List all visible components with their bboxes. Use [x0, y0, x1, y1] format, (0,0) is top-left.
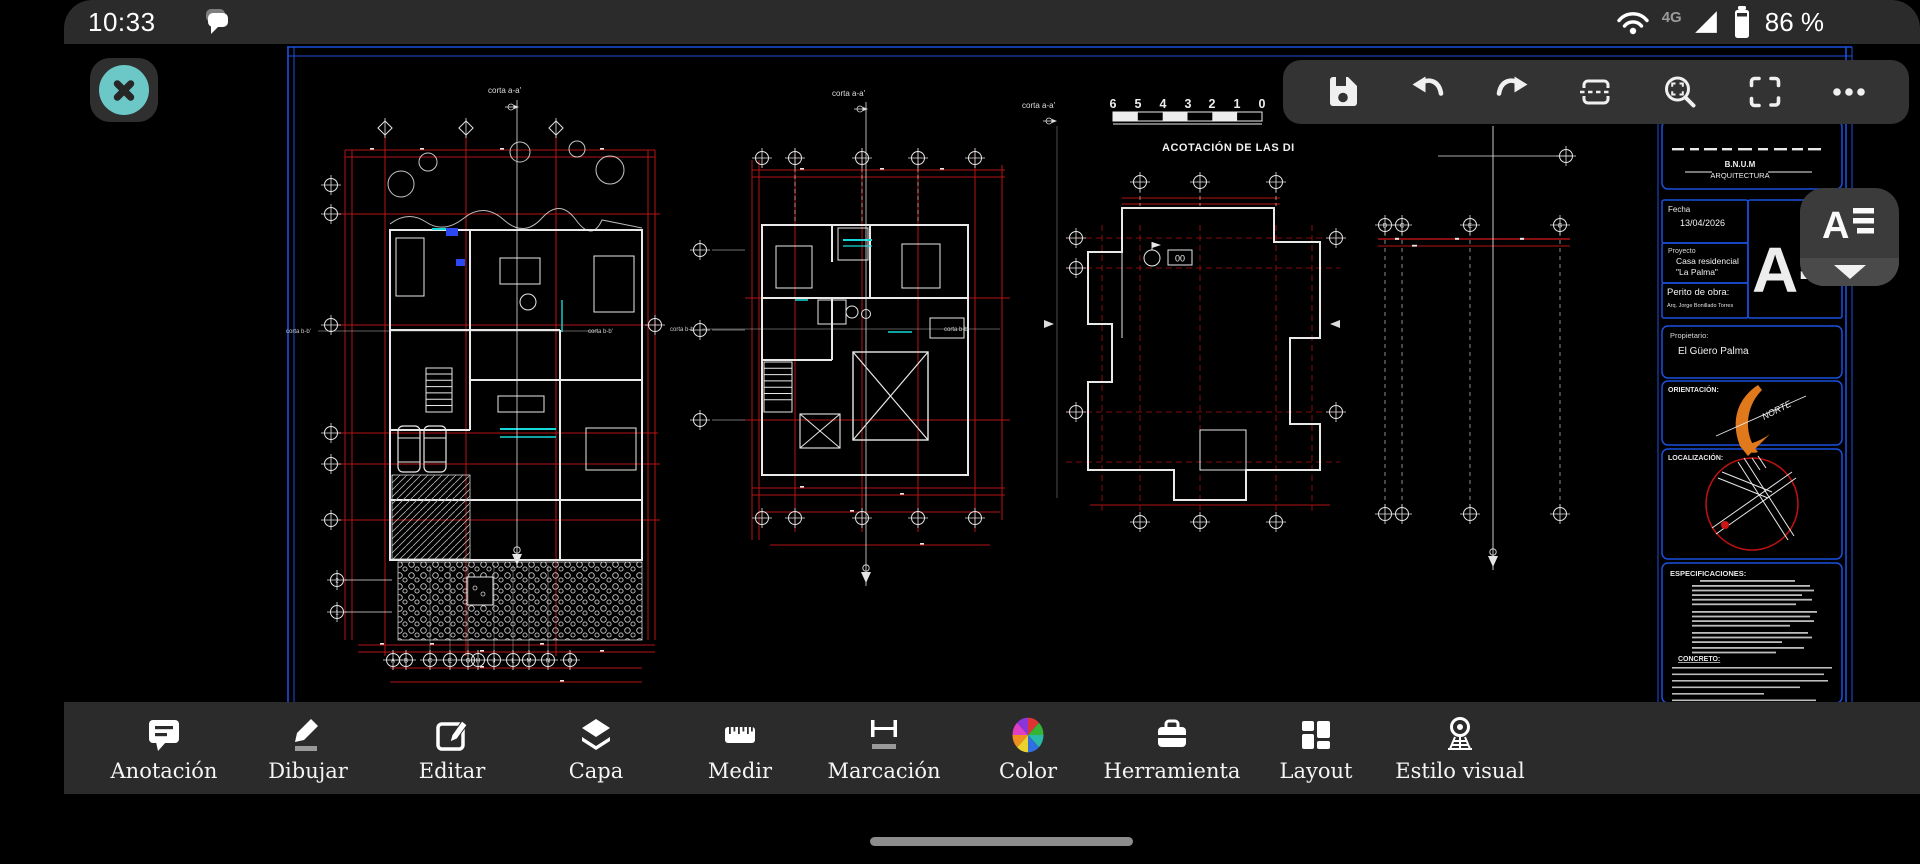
section-label: corta a-a': [488, 86, 522, 95]
concreto-text-lines: [1672, 667, 1832, 701]
toolbox-icon: [1152, 713, 1192, 757]
toolbar-item-editar[interactable]: Editar: [380, 702, 524, 794]
zoom-window-icon: [1660, 72, 1700, 112]
toolbar-item-capa[interactable]: Capa: [524, 702, 668, 794]
grid-letter: A: [391, 659, 395, 665]
layers-icon: [576, 713, 616, 757]
norte-label: NORTE: [1760, 398, 1793, 422]
grid-letter: G: [1558, 224, 1563, 230]
status-bar: 10:33 4G 86 %: [64, 0, 1920, 44]
roof-tag: 00: [1175, 254, 1185, 264]
sheet-selector-expand[interactable]: [1800, 258, 1899, 286]
clock: 10:33: [88, 7, 156, 38]
grid-letter: J: [493, 659, 496, 665]
section-icon: [1576, 72, 1616, 112]
toolbar-item-anotacion[interactable]: Anotación: [92, 702, 236, 794]
fullscreen-icon: [1745, 72, 1785, 112]
color-wheel-icon: [1008, 713, 1048, 757]
visual-style-icon: [1440, 713, 1480, 757]
section-label: corta a-a': [832, 89, 866, 98]
scale-tick: 3: [1185, 97, 1192, 111]
grid-letter: G: [466, 659, 471, 665]
undo-icon: [1408, 72, 1448, 112]
grid-strip: D C E G: [1375, 126, 1576, 570]
scale-bar: 6 5 4 3 2 1 0 ACOTACIÓN DE LAS DI: [1110, 97, 1295, 154]
toolbar-item-marcacion[interactable]: Marcación: [812, 702, 956, 794]
save-icon: [1323, 72, 1363, 112]
toolbar-item-estilo-visual[interactable]: Estilo visual: [1388, 702, 1532, 794]
toolbar-item-color[interactable]: Color: [956, 702, 1100, 794]
toolbar-label: Estilo visual: [1395, 759, 1524, 783]
redo-button[interactable]: [1488, 68, 1536, 116]
close-icon: [99, 65, 149, 115]
phone-screen: 10:33 4G 86 %: [0, 0, 1920, 864]
cad-viewer-app: 10:33 4G 86 %: [64, 0, 1920, 864]
grid-letter: E: [448, 659, 452, 665]
toolbar-label: Layout: [1280, 759, 1353, 783]
toolbar-label: Capa: [569, 759, 624, 783]
propietario-label: Propietario:: [1670, 331, 1708, 340]
section-label: corta b-b': [286, 329, 311, 335]
grid-letter: C: [428, 659, 433, 665]
top-toolbar: [1283, 60, 1909, 124]
especificaciones-label: ESPECIFICACIONES:: [1670, 569, 1746, 578]
propietario-value: El Güero Palma: [1678, 346, 1749, 357]
perito-value: Arq. Jorge Bonillado Torres: [1667, 303, 1733, 309]
chevron-down-icon: [1834, 265, 1866, 279]
firm-name: B.N.U.M: [1725, 160, 1756, 169]
scale-tick: 4: [1160, 97, 1167, 111]
scale-caption: ACOTACIÓN DE LAS DI: [1162, 141, 1295, 154]
grid-letter: O: [568, 659, 573, 665]
grid-number: 1: [335, 611, 339, 617]
grid-letter: C: [1400, 224, 1405, 230]
cad-canvas[interactable]: 6 5 4 3 2 1 0 ACOTACIÓN DE LAS DI: [64, 44, 1920, 702]
scale-tick: 0: [1259, 97, 1266, 111]
signal-icon: [1693, 9, 1719, 35]
toolbar-label: Color: [999, 759, 1057, 783]
spec-text-lines: [1692, 580, 1817, 653]
undo-button[interactable]: [1404, 68, 1452, 116]
ruler-icon: [720, 713, 760, 757]
scale-tick: 1: [1234, 97, 1241, 111]
proyecto-label: Proyecto: [1668, 248, 1696, 255]
bottom-toolbar: Anotación Dibujar Editar: [64, 702, 1920, 794]
grid-letter: L: [511, 659, 515, 665]
section-label: corta b-b': [944, 327, 969, 333]
toolbar-item-layout[interactable]: Layout: [1244, 702, 1388, 794]
wifi-icon: [1615, 9, 1651, 35]
close-button[interactable]: [90, 58, 158, 122]
toolbar-label: Anotación: [111, 759, 218, 783]
fecha-value: 13/04/2026: [1680, 218, 1725, 228]
fullscreen-button[interactable]: [1741, 68, 1789, 116]
chat-notification-icon: [202, 8, 232, 36]
grid-letter: H: [476, 659, 480, 665]
toolbar-item-herramienta[interactable]: Herramienta: [1100, 702, 1244, 794]
toolbar-label: Medir: [708, 759, 772, 783]
firm-subtitle: ARQUITECTURA: [1710, 171, 1769, 180]
proyecto-value-1: Casa residencial: [1676, 256, 1739, 266]
section-label: corta b-b': [670, 327, 695, 333]
orientacion-label: ORIENTACIÓN:: [1668, 385, 1719, 394]
save-button[interactable]: [1319, 68, 1367, 116]
concreto-label: CONCRETO:: [1678, 656, 1720, 663]
plan-3: 00 corta a-a': [1022, 101, 1346, 532]
zoom-window-button[interactable]: [1656, 68, 1704, 116]
scale-tick: 6: [1110, 97, 1117, 111]
toolbar-label: Editar: [419, 759, 486, 783]
toolbar-label: Dibujar: [268, 759, 348, 783]
redo-icon: [1492, 72, 1532, 112]
gesture-handle[interactable]: [870, 837, 1133, 846]
section-label: corta a-a': [1022, 101, 1056, 110]
toolbar-label: Marcación: [828, 759, 941, 783]
battery-percent: 86 %: [1765, 7, 1824, 38]
grid-letter: B: [404, 659, 408, 665]
section-label: corta b-b': [588, 329, 613, 335]
layout-icon: [1296, 713, 1336, 757]
scale-tick: 5: [1135, 97, 1142, 111]
dimension-icon: [864, 713, 904, 757]
grid-letter: M: [527, 659, 532, 665]
scale-tick: 2: [1209, 97, 1216, 111]
fecha-label: Fecha: [1668, 205, 1691, 214]
edit-icon: [432, 713, 472, 757]
localizacion-label: LOCALIZACIÓN:: [1668, 453, 1723, 462]
plan-1: A B C E G H J L M N O 2 1 corta a-a' cor…: [286, 86, 665, 682]
sheet-selector-letter: A: [1822, 205, 1849, 246]
status-icons: 4G 86 %: [1615, 5, 1920, 39]
sheet-selector-button[interactable]: A: [1800, 188, 1899, 286]
text-style-icon: A: [1800, 200, 1899, 246]
more-button[interactable]: [1825, 68, 1873, 116]
network-type-badge: 4G: [1662, 9, 1682, 26]
battery-icon: [1730, 5, 1754, 39]
grid-letter: N: [546, 659, 550, 665]
grid-letter: E: [1468, 224, 1472, 230]
toolbar-item-dibujar[interactable]: Dibujar: [236, 702, 380, 794]
proyecto-value-2: "La Palma": [1676, 267, 1718, 277]
location-map: [1706, 456, 1798, 550]
plan-2: corta a-a' corta b-b' corta b-b': [670, 89, 1010, 586]
more-icon: [1829, 72, 1869, 112]
grid-letter: D: [1383, 224, 1388, 230]
toolbar-label: Herramienta: [1104, 759, 1241, 783]
draw-icon: [288, 713, 328, 757]
annotation-icon: [144, 713, 184, 757]
cad-sheet: 6 5 4 3 2 1 0 ACOTACIÓN DE LAS DI: [64, 44, 1920, 702]
toolbar-item-medir[interactable]: Medir: [668, 702, 812, 794]
perito-label: Perito de obra:: [1667, 287, 1729, 298]
section-button[interactable]: [1572, 68, 1620, 116]
grid-number: 2: [335, 579, 339, 585]
